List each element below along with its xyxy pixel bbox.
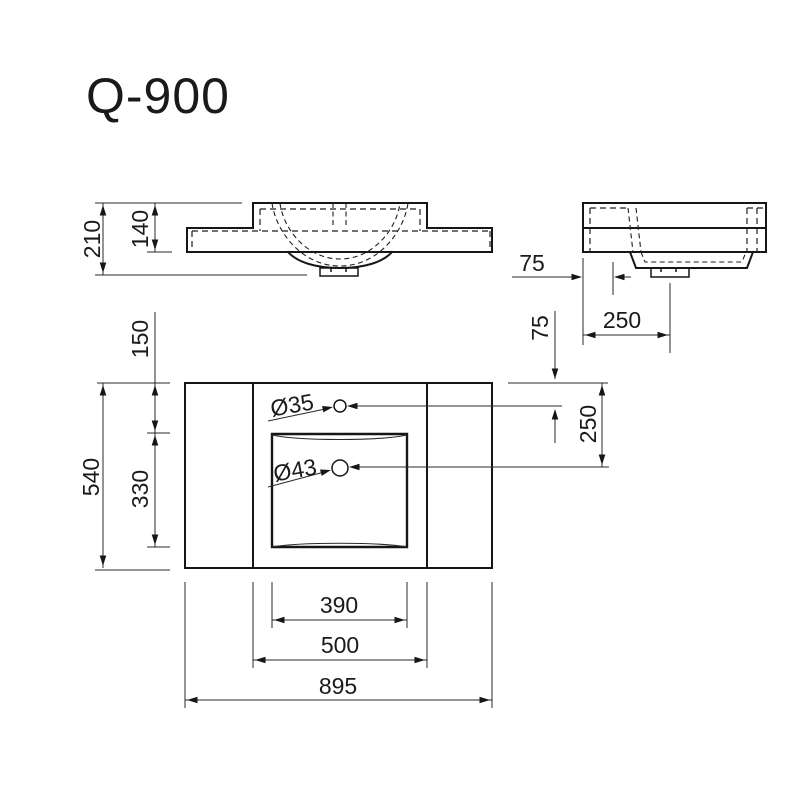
plan-dim-330-label: 330 <box>127 470 153 508</box>
side-dim-250-label: 250 <box>603 307 641 333</box>
side-dim-75-label: 75 <box>519 250 545 276</box>
front-hidden-slab-line <box>192 231 490 248</box>
plan-dim-150-label: 150 <box>127 320 153 358</box>
plan-dim-75-label: 75 <box>527 315 553 341</box>
faucet-diameter-label: Ø35 <box>268 388 315 421</box>
plan-dim-895-label: 895 <box>319 673 357 699</box>
front-dim-210-label: 210 <box>79 220 105 258</box>
drain-hole <box>332 460 348 476</box>
side-hidden-front <box>747 208 766 252</box>
front-dim-140-label: 140 <box>127 210 153 248</box>
front-drain <box>320 268 358 276</box>
plan-dim-500-label: 500 <box>321 632 359 658</box>
drawing-canvas: Q-900 210 140 <box>0 0 800 800</box>
faucet-hole <box>334 400 346 412</box>
front-hidden-deck-inset <box>260 209 420 231</box>
front-outline <box>187 203 492 252</box>
plan-dim-390-label: 390 <box>320 592 358 618</box>
plan-dim-250-label: 250 <box>575 405 601 443</box>
faucet-hole-callout: Ø35 <box>268 388 562 421</box>
side-extension-lines <box>583 258 670 353</box>
plan-basin-back-curve <box>272 435 407 440</box>
front-view-dimensions: 210 140 <box>79 203 307 275</box>
front-hidden-faucet-hole <box>333 203 346 228</box>
side-bowl <box>630 252 753 268</box>
technical-drawing-sheet: Q-900 210 140 <box>0 0 800 800</box>
plan-dim-540-label: 540 <box>78 458 104 496</box>
plan-left-dimensions: 150 330 540 <box>78 312 170 570</box>
side-hidden-bowl-back <box>628 208 641 252</box>
side-hidden-bowl-inner <box>641 252 746 262</box>
plan-basin-rect <box>272 434 407 547</box>
side-view <box>583 203 766 277</box>
side-drain <box>651 268 689 277</box>
drain-hole-callout: Ø43 <box>268 453 609 487</box>
drain-diameter-label: Ø43 <box>271 453 318 486</box>
side-hidden-back <box>590 208 628 252</box>
front-view <box>187 203 492 276</box>
plan-bottom-dimensions: 390 500 895 <box>185 582 492 708</box>
model-title: Q-900 <box>86 68 230 124</box>
plan-view: Ø35 Ø43 <box>185 383 609 568</box>
